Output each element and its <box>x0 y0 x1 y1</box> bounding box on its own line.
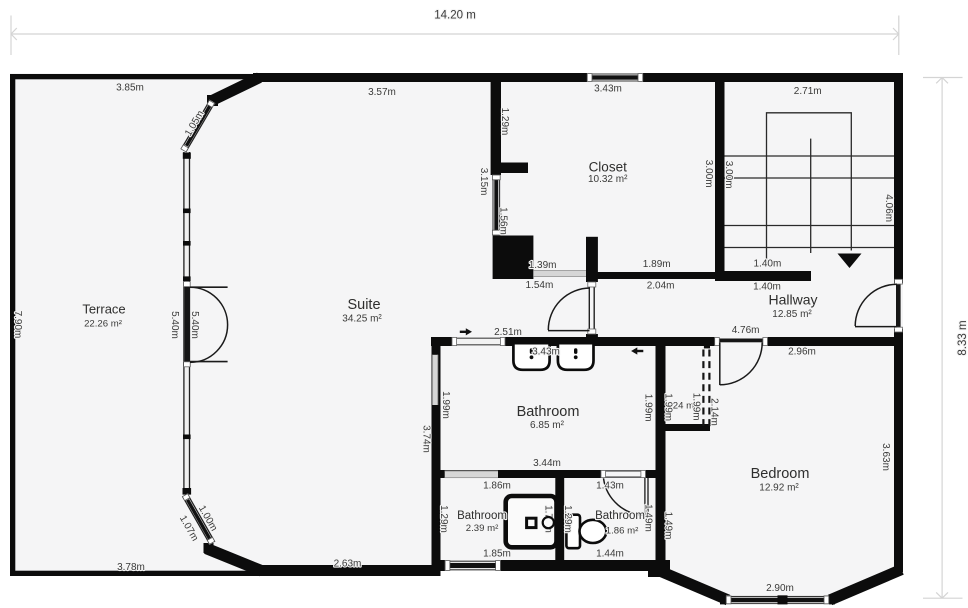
svg-text:Suite: Suite <box>347 297 380 313</box>
svg-text:2.90m: 2.90m <box>766 583 794 594</box>
svg-text:1.85m: 1.85m <box>483 549 511 560</box>
svg-text:Closet: Closet <box>589 160 628 175</box>
svg-text:2.71m: 2.71m <box>794 86 822 97</box>
svg-text:2.14m: 2.14m <box>708 398 719 426</box>
svg-text:2.51m: 2.51m <box>494 327 522 338</box>
svg-text:3.44m: 3.44m <box>533 458 561 469</box>
svg-text:2.63m: 2.63m <box>334 559 362 570</box>
svg-text:10.32 m²: 10.32 m² <box>588 174 628 185</box>
svg-text:6.85 m²: 6.85 m² <box>530 420 565 431</box>
svg-text:5.40m: 5.40m <box>189 311 200 339</box>
svg-text:1.43m: 1.43m <box>596 481 624 492</box>
svg-text:1.56m: 1.56m <box>498 207 509 235</box>
svg-text:1.49m: 1.49m <box>643 504 654 532</box>
svg-text:22.26 m²: 22.26 m² <box>84 318 123 329</box>
svg-text:3.43m: 3.43m <box>594 84 622 95</box>
svg-text:1.86 m²: 1.86 m² <box>606 526 639 537</box>
svg-text:1.44m: 1.44m <box>596 549 624 560</box>
svg-text:7.90m: 7.90m <box>12 311 23 339</box>
svg-text:1.99m: 1.99m <box>643 394 654 422</box>
svg-text:14.20 m: 14.20 m <box>434 10 476 22</box>
svg-text:3.63m: 3.63m <box>880 443 891 471</box>
svg-text:2.96m: 2.96m <box>788 347 816 358</box>
svg-text:Bathroom: Bathroom <box>517 404 580 420</box>
svg-text:34.25 m²: 34.25 m² <box>342 313 382 324</box>
svg-text:3.00m: 3.00m <box>723 161 734 189</box>
svg-text:3.74m: 3.74m <box>421 425 432 453</box>
svg-text:Bathroom: Bathroom <box>595 510 645 522</box>
svg-text:1.99m: 1.99m <box>663 393 674 421</box>
svg-text:4.76m: 4.76m <box>732 325 760 336</box>
svg-text:1.54m: 1.54m <box>526 280 554 291</box>
svg-text:2.04m: 2.04m <box>647 281 675 292</box>
svg-text:4.06m: 4.06m <box>883 194 894 222</box>
svg-text:Hallway: Hallway <box>768 291 817 307</box>
svg-text:1.40m: 1.40m <box>754 259 782 270</box>
svg-text:3.57m: 3.57m <box>368 87 396 98</box>
svg-text:Terrace: Terrace <box>82 302 125 317</box>
svg-text:1.40m: 1.40m <box>753 282 781 293</box>
svg-text:3.78m: 3.78m <box>117 562 145 573</box>
svg-text:5.40m: 5.40m <box>169 311 180 339</box>
svg-text:12.85 m²: 12.85 m² <box>772 309 812 320</box>
svg-text:1.99m: 1.99m <box>690 393 701 421</box>
svg-text:1.49m: 1.49m <box>662 512 673 540</box>
svg-text:1.39m: 1.39m <box>529 260 557 271</box>
svg-text:12.92 m²: 12.92 m² <box>759 483 799 494</box>
svg-text:2.39 m²: 2.39 m² <box>466 523 499 534</box>
svg-text:1.29m: 1.29m <box>499 108 510 136</box>
svg-text:3.85m: 3.85m <box>116 83 144 94</box>
svg-text:3.15m: 3.15m <box>478 168 489 196</box>
svg-text:1.99m: 1.99m <box>440 391 451 419</box>
svg-text:1.89m: 1.89m <box>643 259 671 270</box>
svg-text:3.43m: 3.43m <box>532 347 560 358</box>
svg-text:1.86m: 1.86m <box>483 481 511 492</box>
svg-text:3.00m: 3.00m <box>703 160 714 188</box>
svg-text:Bedroom: Bedroom <box>751 466 810 482</box>
svg-text:1.29m: 1.29m <box>562 505 573 533</box>
svg-text:8.33 m: 8.33 m <box>957 320 968 355</box>
svg-text:Bathroom: Bathroom <box>457 510 507 522</box>
svg-text:1.29m: 1.29m <box>438 505 449 533</box>
